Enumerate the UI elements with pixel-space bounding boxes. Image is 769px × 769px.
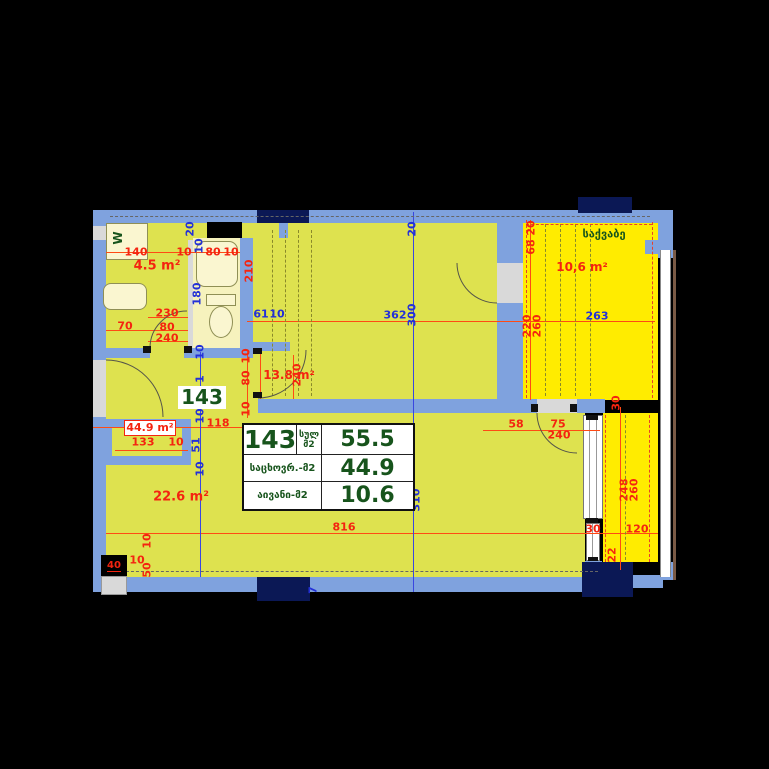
dim-label: 10 bbox=[195, 344, 206, 359]
dim-line bbox=[652, 222, 653, 398]
dim-label: 240 bbox=[156, 333, 179, 344]
balcony-door-opening bbox=[497, 263, 523, 303]
dim-line bbox=[110, 216, 650, 217]
dim-label: 1 bbox=[195, 375, 206, 383]
dim-label: 140 bbox=[125, 247, 148, 258]
dim-label: 260 bbox=[629, 479, 640, 502]
dim-label: 300 bbox=[407, 304, 418, 327]
dim-label: 80 bbox=[205, 247, 220, 258]
dim-label: 10 bbox=[194, 238, 205, 253]
wall-wc-right bbox=[240, 238, 253, 350]
dim-label: 30 bbox=[585, 524, 600, 535]
dim-label: 260 bbox=[532, 315, 543, 338]
hall-area-sign: 44.9 m² bbox=[124, 420, 176, 436]
table-total-unit-line2: მ2 bbox=[303, 440, 314, 450]
bedroom-area-label: 13.8 m² bbox=[263, 368, 315, 382]
entrance-opening bbox=[93, 360, 106, 417]
wall-bottom-right bbox=[633, 575, 663, 588]
dim-label: 230 bbox=[156, 308, 179, 319]
edge-brown-line bbox=[673, 250, 676, 580]
dim-label: 10 bbox=[176, 247, 191, 258]
dim-label: 816 bbox=[333, 522, 356, 533]
column-bottom-right bbox=[582, 562, 633, 597]
column-bottom bbox=[257, 577, 310, 601]
table-row-balcony-value: 10.6 bbox=[322, 482, 413, 509]
dim-label: 133 bbox=[132, 437, 155, 448]
dim-line bbox=[560, 224, 561, 396]
toilet-tank bbox=[206, 294, 236, 306]
dim-line bbox=[483, 430, 600, 431]
dim-label: 10 bbox=[168, 437, 183, 448]
boiler-room-name: საქვაბე bbox=[582, 228, 625, 241]
dim-label: 20 bbox=[526, 220, 537, 235]
dim-label: 240 bbox=[548, 430, 571, 441]
left-wall-sliver bbox=[93, 226, 106, 240]
table-row-living-value: 44.9 bbox=[322, 455, 413, 482]
table-total-unit: სულ მ2 bbox=[297, 425, 322, 455]
wall-balcony-lower bbox=[497, 303, 523, 413]
dim-label: 30 bbox=[611, 395, 622, 410]
dim-label: 10 bbox=[195, 461, 206, 476]
wall-bath-bottom-left bbox=[93, 348, 150, 358]
dim-label: 68 bbox=[526, 239, 537, 254]
dim-line bbox=[545, 224, 546, 396]
living-area-label: 22.6 m² bbox=[153, 490, 209, 505]
table-row-living-label: საცხოვრ.-მ2 bbox=[244, 455, 322, 482]
dim-label: 61 bbox=[253, 309, 268, 320]
dim-label: 263 bbox=[586, 311, 609, 322]
wall-balcony-upper bbox=[497, 222, 523, 263]
shaft-size-box: 40 bbox=[101, 555, 127, 576]
table-total-value: 55.5 bbox=[322, 425, 413, 455]
dim-line bbox=[106, 571, 598, 572]
table-unit-number: 143 bbox=[244, 425, 297, 455]
dim-label: 10 bbox=[269, 309, 284, 320]
wall-top-stub bbox=[279, 222, 288, 238]
dim-line bbox=[106, 533, 658, 534]
dim-label: 210 bbox=[244, 260, 255, 283]
door-stop bbox=[586, 415, 598, 420]
dim-label: 58 bbox=[508, 419, 523, 430]
dim-line bbox=[575, 224, 576, 396]
shaft-size-label: 40 bbox=[107, 560, 121, 572]
dim-line bbox=[115, 450, 188, 451]
vent-shaft bbox=[207, 222, 242, 238]
wall-bedroom-living bbox=[258, 399, 537, 413]
door-stop bbox=[531, 404, 538, 412]
room-vestibule bbox=[497, 413, 585, 577]
dim-label: 180 bbox=[192, 283, 203, 306]
door-stop bbox=[588, 557, 598, 561]
glazing-right-edge bbox=[660, 250, 671, 577]
apartment-number-sign: 143 bbox=[178, 386, 226, 409]
door-stop bbox=[143, 346, 151, 353]
washer-label: W bbox=[111, 231, 125, 244]
dim-label: 70 bbox=[117, 321, 132, 332]
dim-label: 20 bbox=[185, 221, 196, 236]
bath-counter bbox=[103, 283, 147, 310]
dim-line bbox=[526, 224, 652, 225]
toilet-bowl bbox=[209, 306, 233, 338]
floor-plan: W 40 143 სულ მ2 55.5 საცხოვრ.-მ2 44.9 აი… bbox=[0, 0, 769, 769]
table-row-balcony-label: აივანი-მ2 bbox=[244, 482, 322, 509]
dim-label: 20 bbox=[407, 221, 418, 236]
dim-label: 362 bbox=[384, 310, 407, 321]
wall-vestibule-right bbox=[577, 399, 605, 413]
door-stop bbox=[570, 404, 577, 412]
table-total-unit-line1: სულ bbox=[299, 430, 319, 440]
dim-label: 10 bbox=[241, 348, 252, 363]
apartment-summary-table: 143 სულ მ2 55.5 საცხოვრ.-მ2 44.9 აივანი-… bbox=[242, 423, 415, 511]
dim-label: 10 bbox=[223, 247, 238, 258]
bathroom-area-label: 4.5 m² bbox=[134, 259, 181, 274]
dim-label: 22 bbox=[607, 547, 618, 562]
utility-box bbox=[101, 576, 127, 595]
dim-label: 50 bbox=[142, 562, 153, 577]
dim-line bbox=[413, 212, 414, 592]
wall-bottom bbox=[93, 577, 633, 592]
dim-label: 51 bbox=[191, 437, 202, 452]
dim-label: 80 bbox=[241, 370, 252, 385]
boiler-area-label: 10,6 m² bbox=[556, 260, 608, 274]
dim-label: 120 bbox=[626, 524, 649, 535]
dim-line bbox=[649, 415, 650, 562]
dim-label: 7 bbox=[308, 586, 319, 594]
column-top-right bbox=[578, 197, 632, 213]
dim-label: 118 bbox=[207, 418, 230, 429]
door-stop bbox=[184, 346, 192, 353]
door-stop bbox=[253, 348, 262, 354]
door-stop bbox=[253, 392, 262, 398]
dim-label: 10 bbox=[195, 408, 206, 423]
dim-line bbox=[605, 415, 606, 562]
dim-label: 10 bbox=[142, 533, 153, 548]
dim-label: 10 bbox=[241, 401, 252, 416]
